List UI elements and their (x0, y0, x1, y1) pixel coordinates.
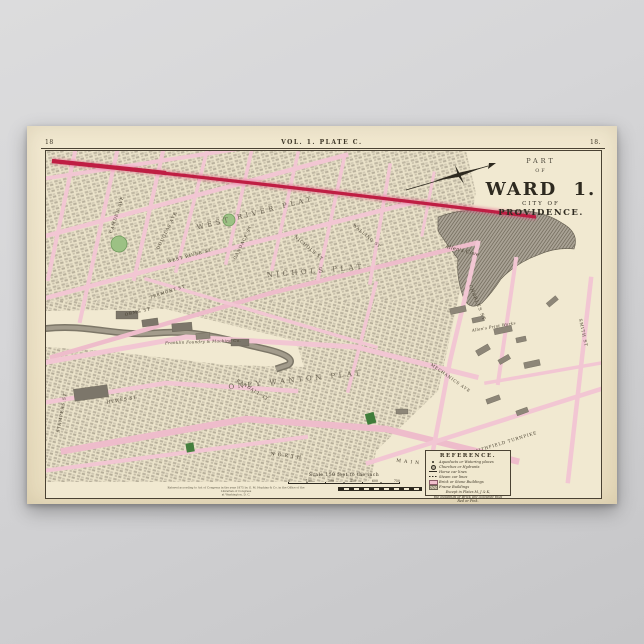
line-symbol-icon (429, 470, 437, 473)
map-plate: PART OF WARD 1. CITY OF PROVIDENCE. CAMD… (45, 150, 602, 499)
legend-title: REFERENCE. (429, 453, 507, 459)
title-of: OF (535, 168, 547, 174)
title-ward: WARD 1. (485, 179, 597, 200)
brick-symbol-icon (429, 480, 437, 483)
volume-plate-title: VOL. 1. PLATE C. (281, 139, 362, 146)
scale-text: Scale 150 feet to the inch (284, 473, 404, 478)
dot-symbol-icon (429, 460, 437, 463)
plate-header: 18 VOL. 1. PLATE C. 18. (45, 136, 601, 146)
page-number-left: 18 (45, 139, 54, 146)
legend-row-text: Steam car lines (439, 475, 467, 479)
legend-row-text: Frame Buildings (439, 485, 469, 489)
target-symbol-icon (429, 465, 437, 468)
page-number-right: 18. (590, 139, 601, 146)
legend-row: Steam car lines (429, 475, 507, 479)
title-city-of: CITY OF (522, 201, 560, 207)
legend-row: Churches or Hydrants (429, 465, 507, 469)
header-rule (41, 148, 605, 149)
scale-block: Scale 150 feet to the inch 0150300450600… (284, 473, 404, 484)
dash-symbol-icon (429, 475, 437, 478)
legend-row: Frame Buildings (429, 485, 507, 489)
legend-row: Aqueducts or Watering places (429, 460, 507, 464)
legend-row-text: Aqueducts or Watering places (439, 460, 494, 464)
legend-footnote: Except in Plates M, J & K, the buildings… (429, 490, 507, 503)
copyright-line: Entered according to Act of Congress in … (165, 487, 308, 496)
map-artwork: PART OF WARD 1. CITY OF PROVIDENCE. CAMD… (46, 151, 601, 498)
survey-chain-bar (338, 487, 422, 491)
frame-symbol-icon (429, 485, 437, 488)
legend-row: Brick or Stone Buildings (429, 480, 507, 484)
product-photo-background: 18 VOL. 1. PLATE C. 18. (0, 0, 644, 644)
legend-row-text: Churches or Hydrants (439, 465, 480, 469)
legend-row-text: Brick or Stone Buildings (439, 480, 484, 484)
scale-bar (288, 483, 400, 484)
legend-row: Horse car lines (429, 470, 507, 474)
reference-legend: REFERENCE. Aqueducts or Watering placesC… (425, 450, 511, 496)
title-providence: PROVIDENCE. (498, 208, 584, 218)
title-part: PART (526, 157, 556, 165)
map-poster: 18 VOL. 1. PLATE C. 18. (27, 126, 617, 504)
legend-row-text: Horse car lines (439, 470, 467, 474)
legend-rows: Aqueducts or Watering placesChurches or … (429, 460, 507, 489)
